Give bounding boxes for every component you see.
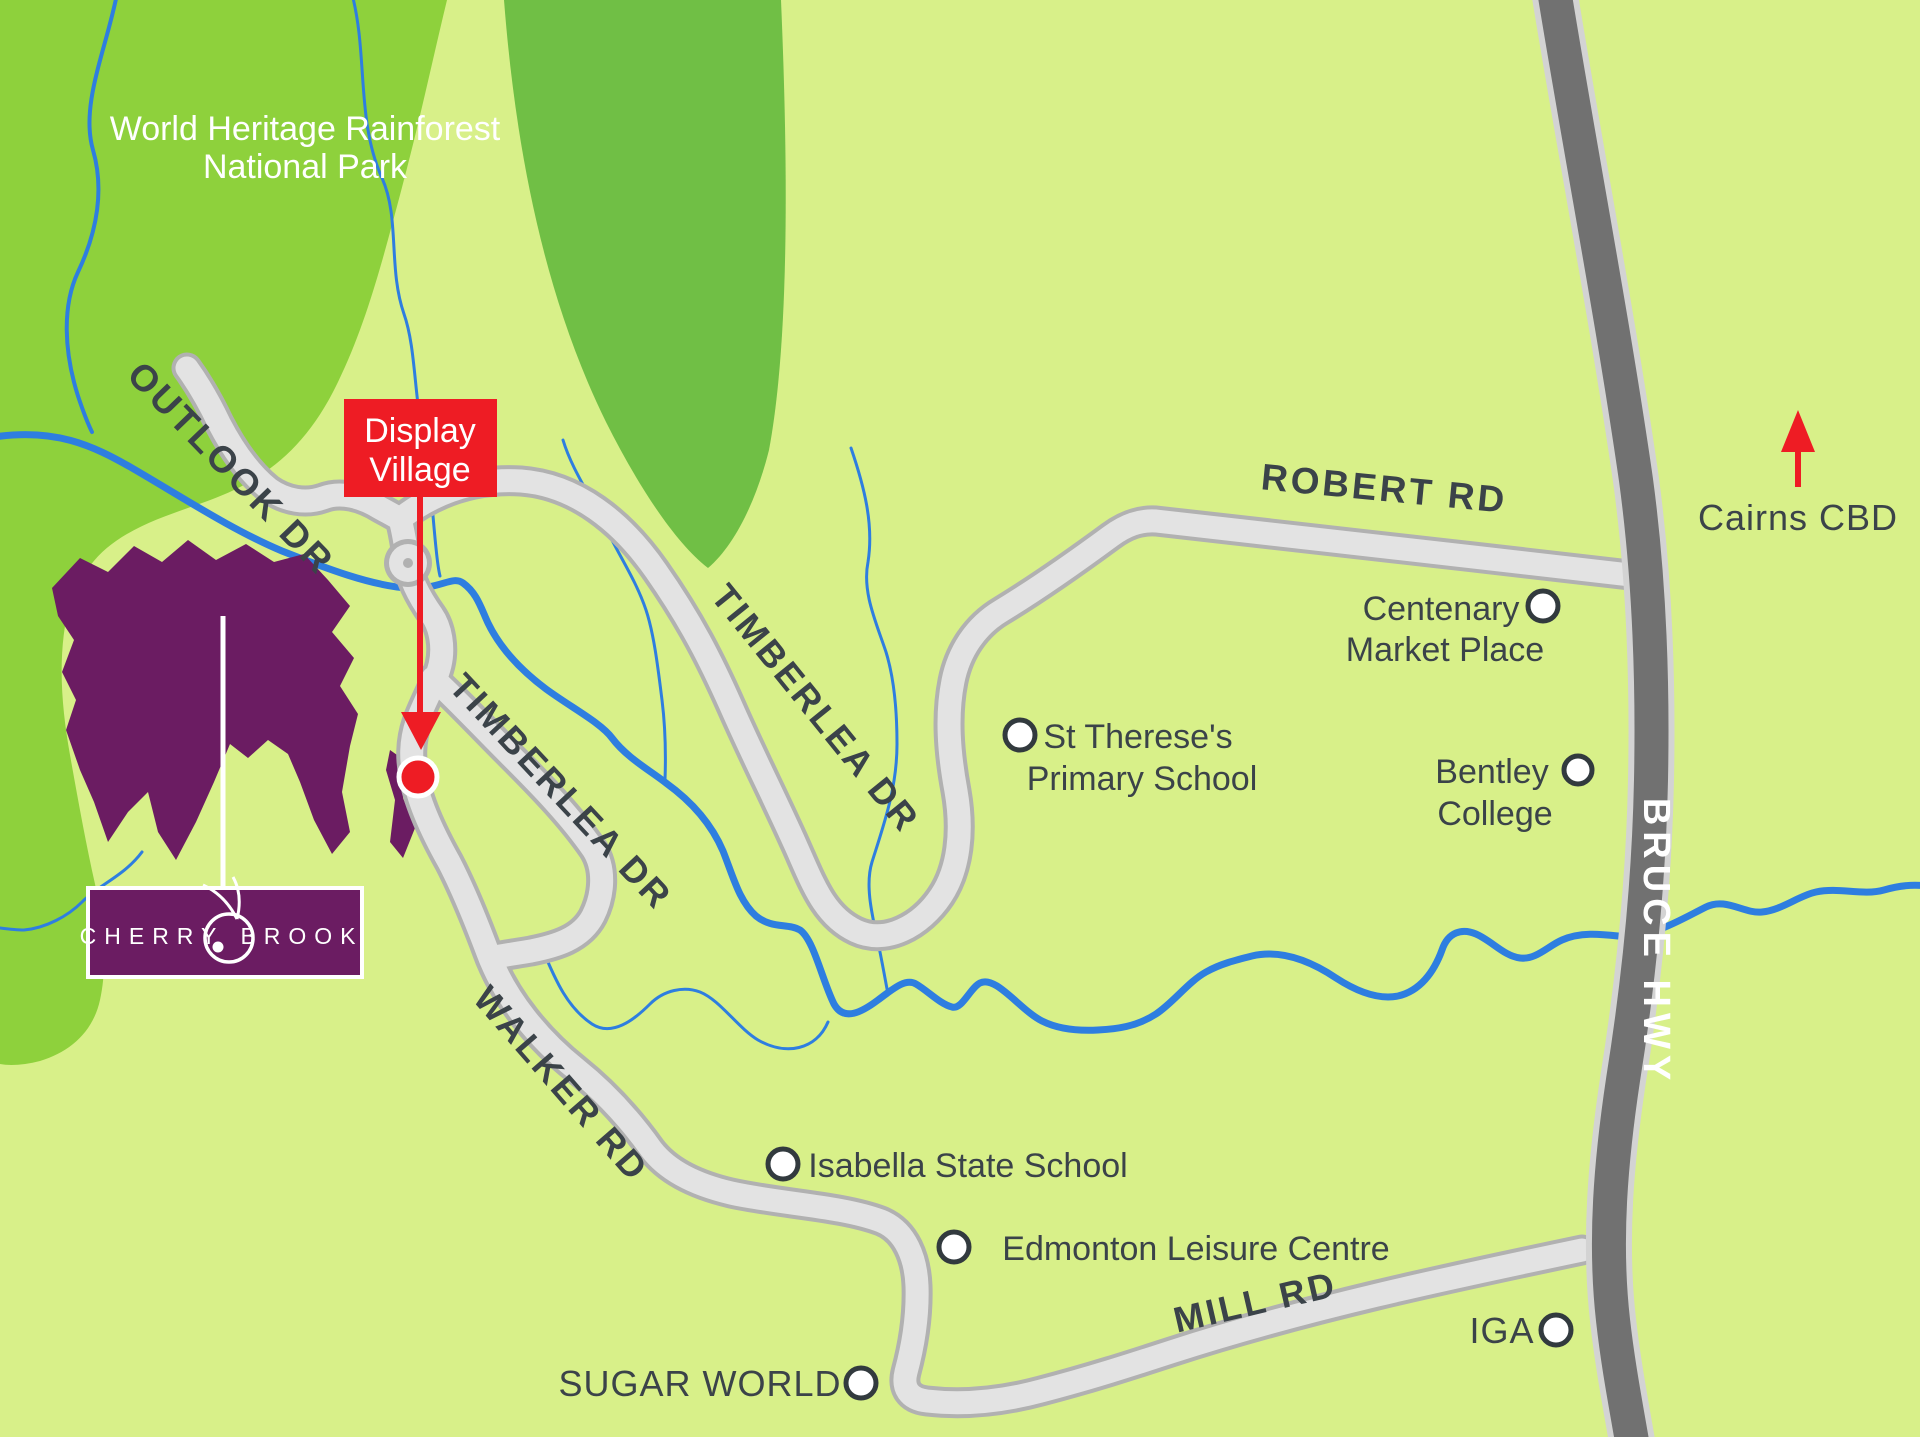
poi-marker-isabella xyxy=(768,1149,798,1179)
poi-marker-bentley xyxy=(1564,756,1592,784)
poi-marker-st-therese xyxy=(1005,720,1035,750)
label-cairns-cbd: Cairns CBD xyxy=(1698,497,1898,538)
poi-marker-iga xyxy=(1541,1315,1571,1345)
label-iga: IGA xyxy=(1469,1310,1534,1351)
label-bentley-line2: College xyxy=(1437,795,1552,833)
label-bruce-hwy: BRUCE HWY xyxy=(1635,798,1677,1086)
logo-word-cherry: CHERRY xyxy=(80,923,225,949)
label-isabella: Isabella State School xyxy=(808,1147,1127,1185)
poi-marker-sugar-world xyxy=(846,1368,876,1398)
label-st-therese-line1: St Therese's xyxy=(1043,718,1232,756)
location-map: OUTLOOK DR TIMBERLEA DR TIMBERLEA DR ROB… xyxy=(0,0,1920,1437)
logo-word-brook: BROOK xyxy=(240,923,363,949)
park-label-line1: World Heritage Rainforest xyxy=(110,110,501,148)
label-edmonton: Edmonton Leisure Centre xyxy=(1002,1230,1389,1268)
park-label-line2: National Park xyxy=(203,148,408,186)
label-sugar-world: SUGAR WORLD xyxy=(558,1363,841,1404)
label-centenary-line2: Market Place xyxy=(1346,631,1544,669)
display-village-location-dot xyxy=(399,758,437,796)
label-display-village-line2: Village xyxy=(369,451,470,489)
map-canvas: OUTLOOK DR TIMBERLEA DR TIMBERLEA DR ROB… xyxy=(0,0,1920,1437)
roundabout-center xyxy=(403,558,413,568)
label-centenary-line1: Centenary xyxy=(1363,590,1520,628)
label-display-village-line1: Display xyxy=(364,412,475,450)
cherry-icon-dot xyxy=(213,942,224,953)
label-bentley-line1: Bentley xyxy=(1435,753,1548,791)
roundabout xyxy=(384,539,432,587)
poi-marker-edmonton xyxy=(939,1232,969,1262)
poi-marker-centenary xyxy=(1528,591,1558,621)
label-st-therese-line2: Primary School xyxy=(1027,760,1258,798)
